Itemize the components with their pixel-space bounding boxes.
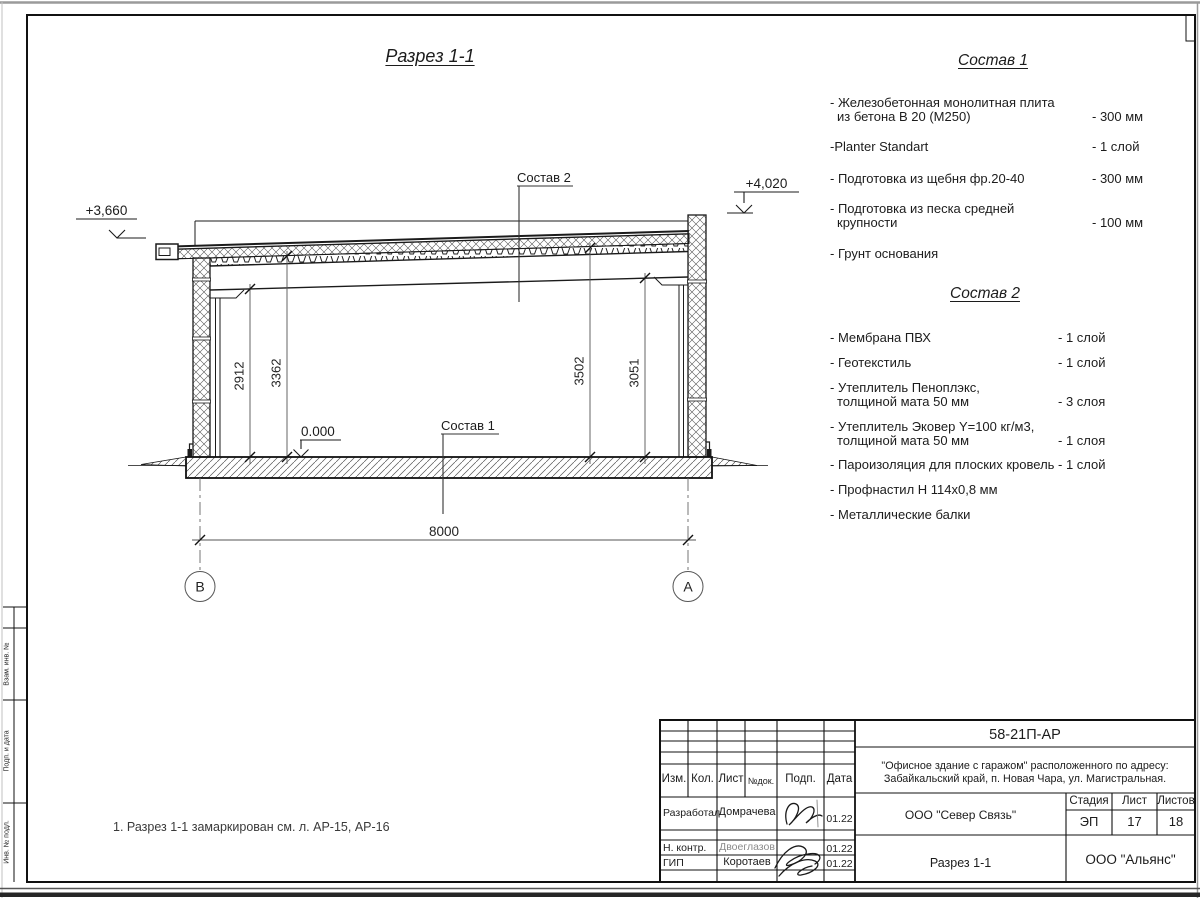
stamp-code: 58-21П-АР — [855, 727, 1195, 743]
stamp-role: Н. контр. — [663, 842, 706, 854]
stamp-drawing-name: Разрез 1-1 — [857, 856, 1064, 870]
list-item: - Геотекстиль - 1 слой — [830, 356, 1175, 370]
item-text: - Мембрана ПВХ — [830, 331, 1175, 345]
axis-letter-right: А — [683, 579, 693, 595]
stamp-role-name: Домрачева — [717, 806, 777, 818]
item-text: - Грунт основания — [830, 247, 1175, 261]
stamp-role: Разработал — [663, 807, 720, 819]
item-value: - 3 слоя — [1058, 395, 1105, 409]
stamp-sheet-label: Лист — [1112, 795, 1157, 807]
stamp-sheets-label: Листов — [1157, 795, 1195, 807]
dim-3502: 3502 — [572, 357, 587, 386]
ground-wedge-left — [141, 457, 186, 466]
stamp-object-line1: "Офисное здание с гаражом" расположенног… — [855, 760, 1195, 772]
item-value: - 100 мм — [1092, 216, 1143, 230]
dim-3362: 3362 — [269, 359, 284, 388]
item-text: - Утеплитель Пеноплэкс, — [830, 381, 1175, 395]
side-strip-label: Инв. № подл. — [4, 820, 11, 864]
sostav1-title: Состав 1 — [903, 52, 1083, 70]
stamp-role-date: 01.22 — [824, 858, 855, 870]
item-value: - 1 слой — [1058, 331, 1106, 345]
stamp-col-kol: Кол. — [688, 773, 717, 785]
floor-slab — [128, 457, 768, 478]
elevation-left-value: +3,660 — [76, 203, 137, 218]
stamp-col-list: Лист — [717, 773, 745, 785]
roof-beam — [210, 277, 688, 298]
list-item: - Мембрана ПВХ - 1 слой — [830, 331, 1175, 345]
item-text: - Пароизоляция для плоских кровель — [830, 458, 1175, 472]
list-item: - Подготовка из песка средней крупности … — [830, 202, 1175, 229]
stamp-sheets-value: 18 — [1157, 814, 1195, 829]
stamp-contractor: ООО "Север Связь" — [857, 808, 1064, 822]
beam-haunch-left — [210, 290, 244, 298]
elevation-zero-value: 0.000 — [301, 424, 335, 439]
ground-wedge-right — [712, 457, 757, 466]
stamp-sheet-value: 17 — [1112, 814, 1157, 829]
drawing-sheet: Взам. инв. № Подп. и дата Инв. № подл. — [0, 0, 1200, 900]
axis-markers: 8000 В А — [185, 478, 703, 602]
stamp-col-izm: Изм. — [660, 773, 688, 785]
item-text: - Подготовка из песка средней — [830, 202, 1175, 216]
stamp-col-data: Дата — [824, 773, 855, 785]
stamp-col-podp: Подп. — [777, 773, 824, 785]
list-item: -Planter Standart - 1 слой — [830, 140, 1175, 154]
item-text: толщиной мата 50 мм — [830, 434, 1175, 448]
note-text: 1. Разрез 1-1 замаркирован см. л. АР-15,… — [113, 820, 390, 834]
callout-sostav1: Состав 1 — [441, 418, 495, 433]
item-text: - Металлические балки — [830, 508, 1175, 522]
list-item: - Утеплитель Эковер Y=100 кг/м3, толщино… — [830, 420, 1175, 447]
stamp-role-name: Коротаев — [717, 856, 777, 868]
list-item: - Подготовка из щебня фр.20-40 - 300 мм — [830, 172, 1175, 186]
item-text: - Профнастил Н 114х0,8 мм — [830, 483, 1175, 497]
item-value: - 1 слой — [1092, 140, 1140, 154]
list-item: - Профнастил Н 114х0,8 мм — [830, 483, 1175, 497]
stamp-role-date: 01.22 — [824, 813, 855, 825]
dim-2912: 2912 — [232, 362, 247, 391]
dim-3051: 3051 — [627, 359, 642, 388]
list-item: - Железобетонная монолитная плита из бет… — [830, 96, 1175, 123]
section-title: Разрез 1-1 — [330, 46, 530, 67]
list-item: - Грунт основания — [830, 247, 1175, 261]
stamp-company: ООО "Альянс" — [1066, 852, 1195, 867]
sostav2-title: Состав 2 — [895, 285, 1075, 303]
list-item: - Пароизоляция для плоских кровель - 1 с… — [830, 458, 1175, 472]
item-text: толщиной мата 50 мм — [830, 395, 1175, 409]
roof-assembly — [156, 231, 689, 266]
stamp-stage-value: ЭП — [1066, 814, 1112, 829]
item-value: - 300 мм — [1092, 110, 1143, 124]
list-item: - Металлические балки — [830, 508, 1175, 522]
stamp-col-ndok: №док. — [745, 776, 777, 786]
elevation-right-value: +4,020 — [734, 176, 799, 191]
side-strip-label: Подп. и дата — [4, 730, 11, 771]
side-strip: Взам. инв. № Подп. и дата Инв. № подл. — [3, 607, 27, 882]
callout-sostav2: Состав 2 — [517, 170, 571, 185]
item-text: - Железобетонная монолитная плита — [830, 96, 1175, 110]
item-value: - 1 слой — [1058, 356, 1106, 370]
stamp-role-name: Двоеглазов — [717, 841, 777, 853]
side-strip-label: Взам. инв. № — [4, 642, 11, 685]
item-value: - 300 мм — [1092, 172, 1143, 186]
item-text: - Геотекстиль — [830, 356, 1175, 370]
stamp-role: ГИП — [663, 857, 684, 869]
dim-8000: 8000 — [429, 524, 459, 539]
axis-letter-left: В — [195, 579, 204, 595]
list-item: - Утеплитель Пеноплэкс, толщиной мата 50… — [830, 381, 1175, 408]
stamp-role-date: 01.22 — [824, 843, 855, 855]
stamp-stage-label: Стадия — [1066, 795, 1112, 807]
left-wall — [188, 258, 211, 457]
item-value: - 1 слой — [1058, 458, 1106, 472]
stamp-object-line2: Забайкальский край, п. Новая Чара, ул. М… — [855, 773, 1195, 785]
item-text: - Утеплитель Эковер Y=100 кг/м3, — [830, 420, 1175, 434]
item-value: - 1 слоя — [1058, 434, 1105, 448]
section-drawing: 2912 3362 3502 3051 8000 В А — [76, 186, 799, 602]
right-wall — [688, 215, 712, 457]
